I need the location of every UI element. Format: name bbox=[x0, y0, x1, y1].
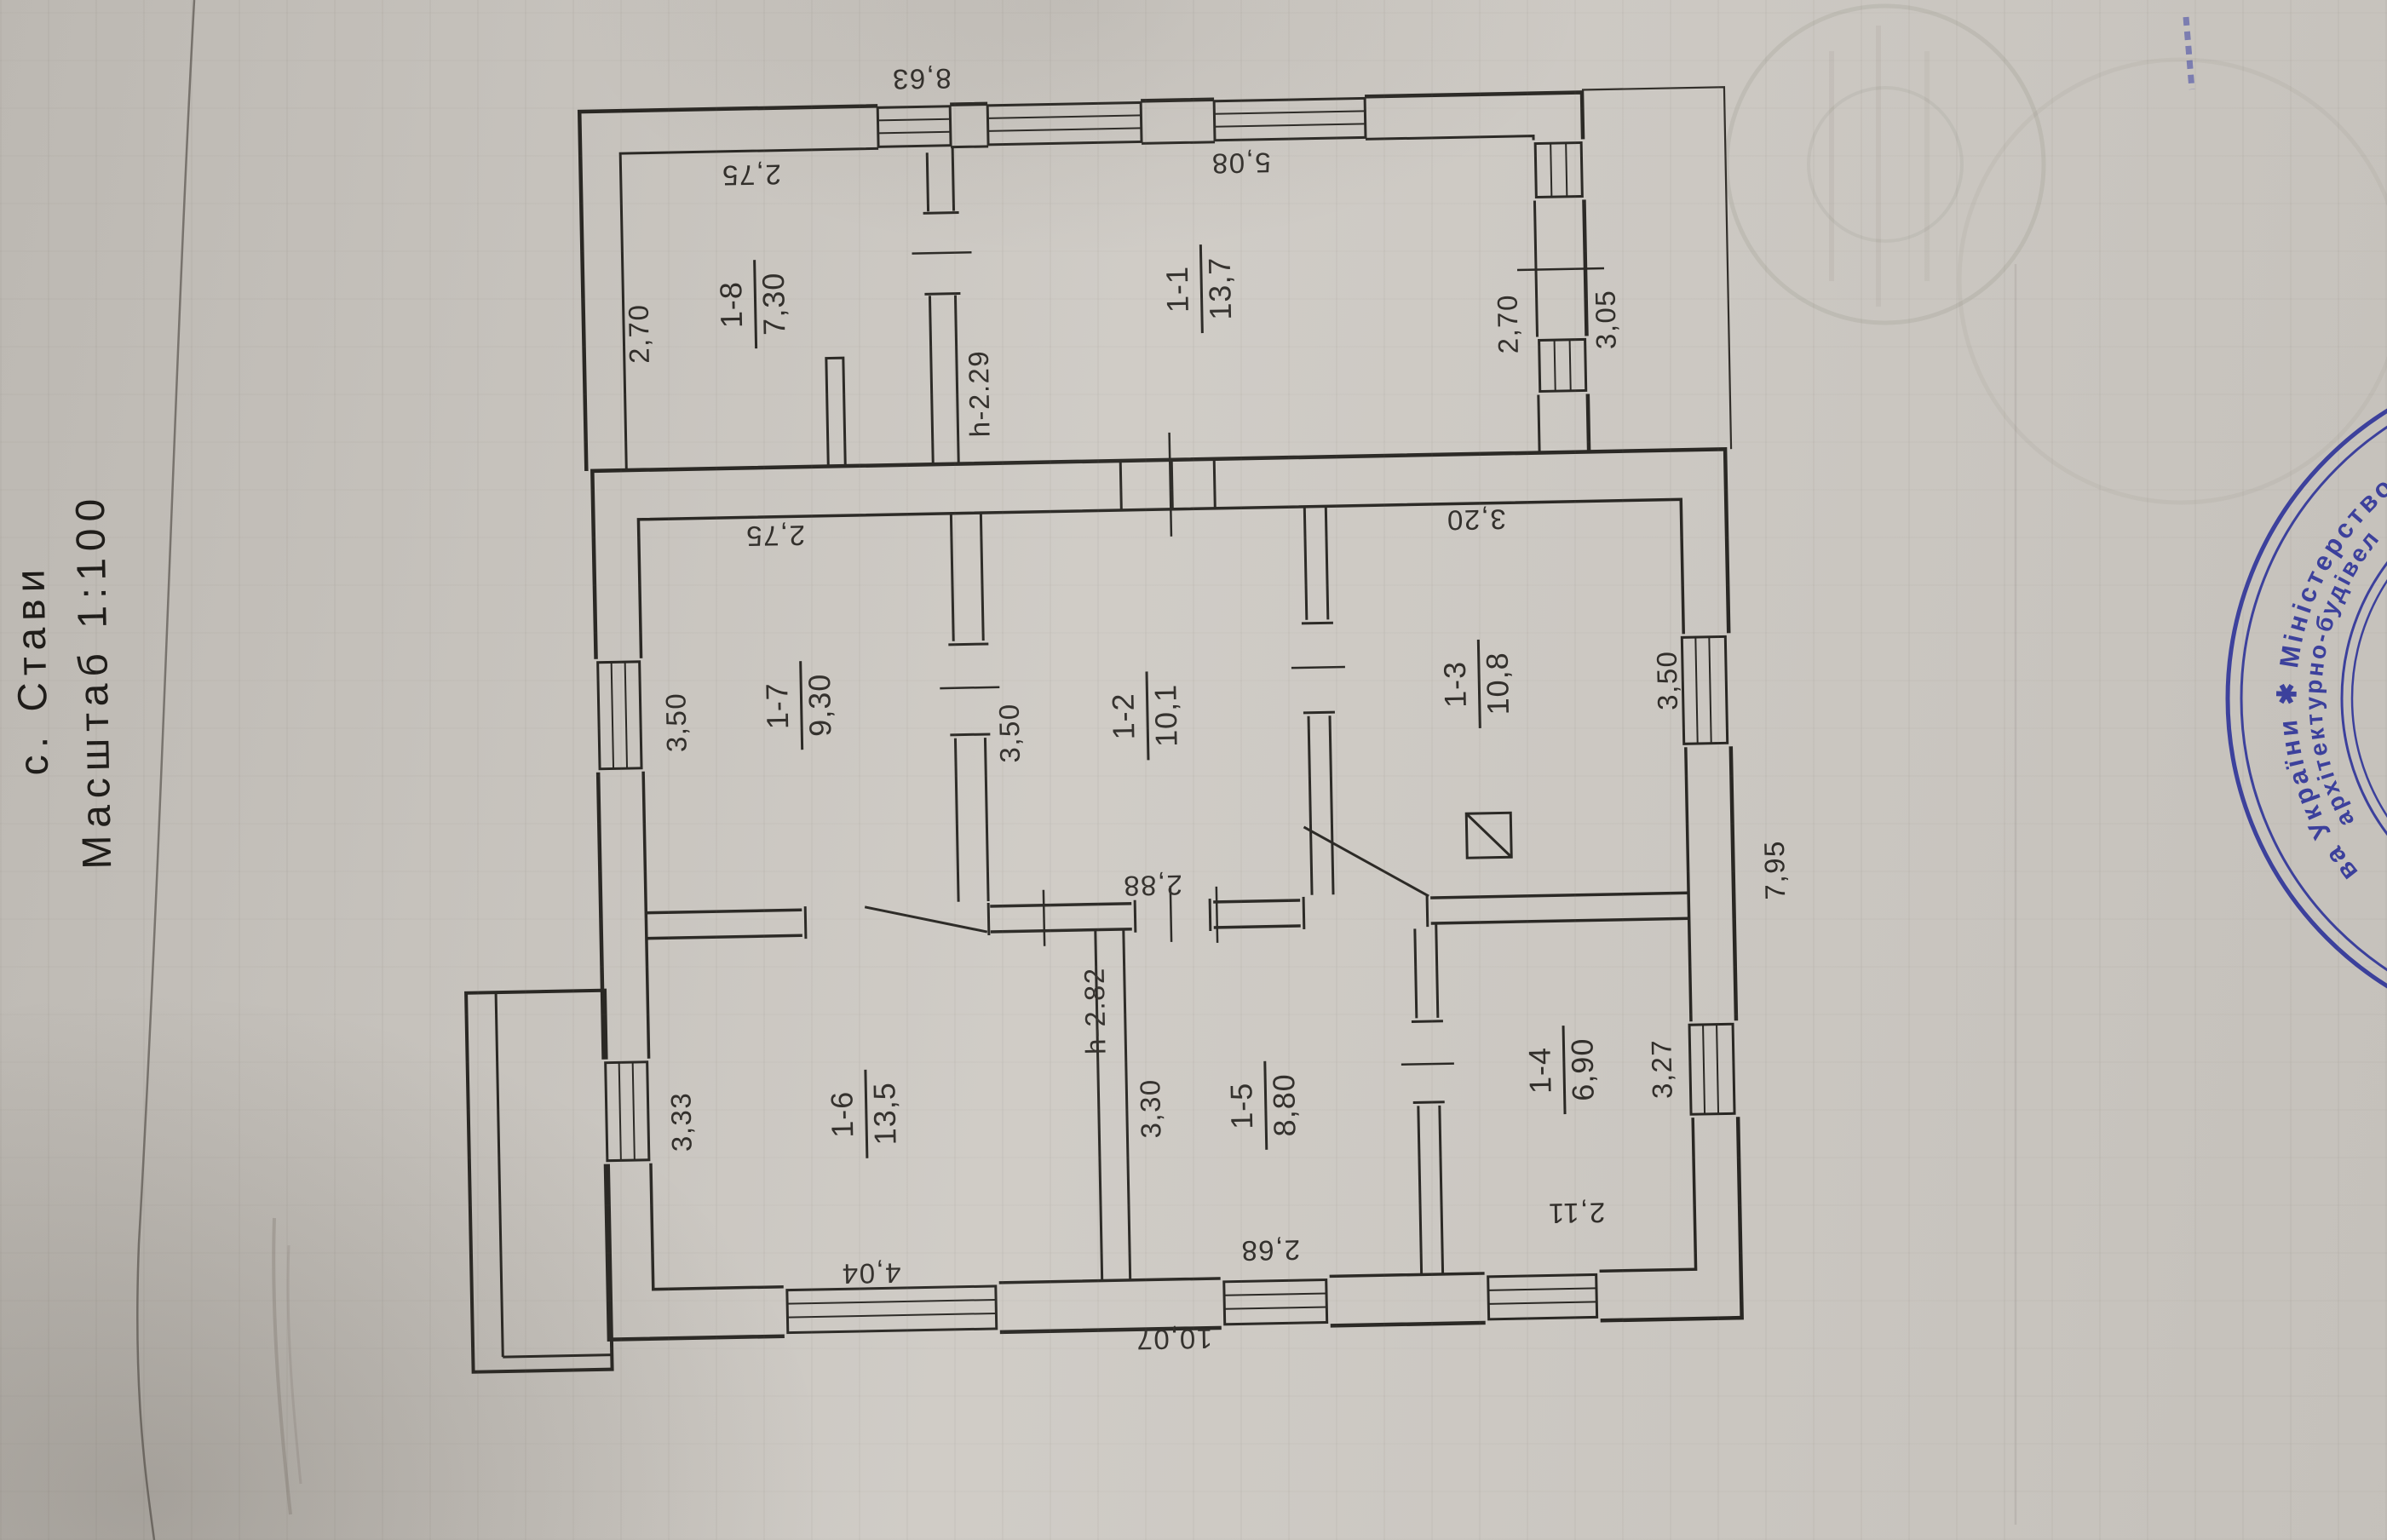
room-label-1-8: 1-8 7,30 bbox=[713, 259, 792, 349]
dim-porch-height: h-2.29 bbox=[963, 349, 996, 437]
room-area: 7,30 bbox=[756, 272, 791, 336]
dim-room15-width: 2,68 bbox=[1240, 1234, 1301, 1267]
dim-room11-right-outer: 3,05 bbox=[1589, 290, 1621, 350]
left-annex-wall bbox=[466, 991, 613, 1372]
room-label-1-4: 1-4 6,90 bbox=[1521, 1025, 1601, 1115]
room-area: 6,90 bbox=[1564, 1037, 1600, 1101]
room-area: 10,1 bbox=[1147, 684, 1183, 748]
stove-symbol bbox=[1466, 813, 1511, 858]
door-jambs bbox=[792, 204, 1445, 1114]
room-id: 1-5 bbox=[1223, 1082, 1259, 1129]
dim-room11-width: 5,08 bbox=[1211, 147, 1271, 180]
dim-room12-depth: 3,50 bbox=[993, 703, 1026, 763]
dim-main-height: h-2.82 bbox=[1078, 967, 1112, 1054]
room-id: 1-6 bbox=[824, 1090, 860, 1138]
blue-ink-fragment bbox=[2186, 17, 2192, 89]
room-area: 8,80 bbox=[1266, 1073, 1302, 1137]
floor-plan-drawing: 8,63 2,75 2,70 5,08 h-2.29 2,70 3,05 2,7… bbox=[0, 0, 2387, 1540]
dim-room14-depth: 3,27 bbox=[1645, 1038, 1677, 1099]
bleed-through-stamp bbox=[1727, 6, 2387, 503]
dim-room13-depth: 3,50 bbox=[1651, 650, 1683, 710]
title-block: с. Стави Масштаб 1:100 bbox=[7, 491, 120, 871]
room-id: 1-8 bbox=[713, 281, 749, 329]
room-labels: 1-8 7,30 1-1 13,7 1-7 9,30 1-2 10,1 1-3 bbox=[712, 237, 1601, 1160]
crease-line bbox=[137, 0, 194, 1540]
room-label-1-5: 1-5 8,80 bbox=[1223, 1060, 1303, 1151]
scanned-floor-plan-page: 8,63 2,75 2,70 5,08 h-2.29 2,70 3,05 2,7… bbox=[0, 0, 2387, 1540]
door-leaf bbox=[1304, 825, 1429, 899]
room-area: 13,7 bbox=[1202, 256, 1238, 320]
dim-room14-width: 2,11 bbox=[1547, 1197, 1605, 1229]
dim-overall-top: 8,63 bbox=[891, 63, 952, 95]
dim-room16-width: 4,04 bbox=[841, 1257, 901, 1290]
room-area: 13,5 bbox=[866, 1082, 902, 1146]
dim-room12-width: 2,88 bbox=[1122, 870, 1182, 902]
room-id: 1-2 bbox=[1105, 692, 1141, 740]
dim-room18-width: 2,75 bbox=[721, 159, 781, 192]
room-id: 1-4 bbox=[1522, 1047, 1558, 1095]
settlement-title: с. Стави bbox=[8, 562, 57, 776]
dim-room16-depth: 3,33 bbox=[664, 1092, 697, 1152]
room-label-1-6: 1-6 13,5 bbox=[824, 1069, 903, 1159]
dim-room15-depth: 3,30 bbox=[1134, 1078, 1166, 1139]
scratch-mark bbox=[288, 1245, 301, 1484]
dim-room11-right-inner: 2,70 bbox=[1492, 294, 1524, 354]
plan-group: 8,63 2,75 2,70 5,08 h-2.29 2,70 3,05 2,7… bbox=[0, 47, 1799, 1381]
room-area: 10,8 bbox=[1480, 652, 1516, 715]
flue-stub-wall bbox=[826, 358, 845, 466]
room-id: 1-7 bbox=[759, 682, 795, 730]
dim-room18-depth: 2,70 bbox=[623, 303, 655, 364]
right-annex-outline bbox=[1582, 87, 1731, 451]
room-label-1-1: 1-1 13,7 bbox=[1159, 244, 1238, 334]
room-area: 9,30 bbox=[802, 673, 837, 737]
dim-overall-right: 7,95 bbox=[1758, 840, 1791, 900]
dimension-labels: 8,63 2,75 2,70 5,08 h-2.29 2,70 3,05 2,7… bbox=[618, 47, 1799, 1365]
scale-title: Масштаб 1:100 bbox=[68, 491, 120, 870]
dim-room17-width: 2,75 bbox=[745, 520, 805, 552]
room-label-1-3: 1-3 10,8 bbox=[1436, 639, 1516, 729]
room-label-1-2: 1-2 10,1 bbox=[1105, 671, 1184, 761]
dim-overall-bottom: 10,07 bbox=[1136, 1323, 1213, 1356]
room-id: 1-1 bbox=[1159, 266, 1195, 313]
room-label-1-7: 1-7 9,30 bbox=[759, 660, 838, 750]
dim-room13-width: 3,20 bbox=[1446, 503, 1506, 536]
dim-room17-depth: 3,50 bbox=[659, 692, 692, 753]
room-id: 1-3 bbox=[1437, 661, 1473, 709]
